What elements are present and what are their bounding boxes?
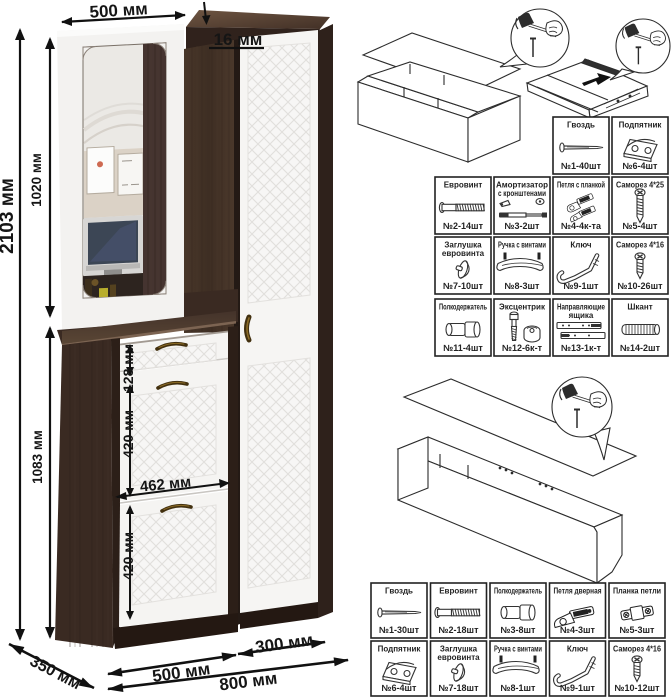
svg-text:№7-10шт: №7-10шт bbox=[443, 281, 484, 291]
svg-text:Саморез 4*16: Саморез 4*16 bbox=[616, 241, 664, 250]
svg-text:Подпятник: Подпятник bbox=[619, 121, 663, 130]
svg-text:ящика: ящика bbox=[569, 311, 594, 320]
svg-text:№8-1шт: №8-1шт bbox=[501, 683, 537, 693]
svg-text:Планка петли: Планка петли bbox=[613, 587, 661, 596]
svg-text:№4-3шт: №4-3шт bbox=[560, 625, 596, 635]
svg-text:Петля дверная: Петля дверная bbox=[554, 587, 602, 596]
svg-text:№6-4шт: №6-4шт bbox=[623, 161, 659, 171]
svg-text:№5-4шт: №5-4шт bbox=[623, 221, 659, 231]
svg-text:№4-4к-та: №4-4к-та bbox=[561, 221, 602, 231]
svg-text:Эксцентрик: Эксцентрик bbox=[499, 303, 546, 312]
svg-text:Ключ: Ключ bbox=[570, 241, 591, 250]
svg-text:№14-2шт: №14-2шт bbox=[620, 343, 661, 353]
svg-text:Гвоздь: Гвоздь bbox=[385, 587, 413, 596]
svg-text:№3-8шт: №3-8шт bbox=[501, 625, 537, 635]
svg-text:Ключ: Ключ bbox=[567, 645, 588, 654]
svg-text:№1-40шт: №1-40шт bbox=[561, 161, 602, 171]
svg-text:евровинта: евровинта bbox=[442, 249, 485, 258]
svg-text:Подпятник: Подпятник bbox=[378, 645, 422, 654]
svg-text:Полкодержатель: Полкодержатель bbox=[439, 303, 487, 312]
svg-text:Ручка с винтами: Ручка с винтами bbox=[494, 645, 542, 654]
svg-text:Ручка с винтами: Ручка с винтами bbox=[498, 241, 546, 250]
svg-text:Евровинт: Евровинт bbox=[439, 587, 478, 596]
svg-text:Евровинт: Евровинт bbox=[444, 181, 483, 190]
svg-text:№9-1шт: №9-1шт bbox=[560, 683, 596, 693]
svg-text:Гвоздь: Гвоздь bbox=[567, 121, 595, 130]
svg-text:Шкант: Шкант bbox=[627, 303, 652, 312]
svg-text:№5-3шт: №5-3шт bbox=[620, 625, 656, 635]
svg-text:№10-12шт: №10-12шт bbox=[615, 683, 661, 693]
svg-text:№6-4шт: №6-4шт bbox=[382, 683, 418, 693]
svg-text:№10-26шт: №10-26шт bbox=[618, 281, 664, 291]
svg-text:№2-18шт: №2-18шт bbox=[439, 625, 480, 635]
svg-text:Саморез 4*16: Саморез 4*16 bbox=[613, 645, 661, 654]
svg-text:№7-18шт: №7-18шт bbox=[439, 683, 480, 693]
svg-text:с кронштенами: с кронштенами bbox=[498, 189, 546, 198]
svg-text:№13-1к-т: №13-1к-т bbox=[561, 343, 602, 353]
svg-text:№12-6к-т: №12-6к-т bbox=[502, 343, 543, 353]
svg-text:евровинта: евровинта bbox=[437, 653, 480, 662]
svg-text:№3-2шт: №3-2шт bbox=[505, 221, 541, 231]
svg-text:№9-1шт: №9-1шт bbox=[564, 281, 600, 291]
svg-text:Полкодержатель: Полкодержатель bbox=[494, 587, 542, 596]
svg-text:№2-14шт: №2-14шт bbox=[443, 221, 484, 231]
svg-text:№8-3шт: №8-3шт bbox=[505, 281, 541, 291]
svg-text:Петля с планкой: Петля с планкой bbox=[557, 181, 605, 190]
svg-text:№1-30шт: №1-30шт bbox=[379, 625, 420, 635]
svg-text:Саморез 4*25: Саморез 4*25 bbox=[616, 181, 664, 190]
svg-text:№11-4шт: №11-4шт bbox=[443, 343, 483, 353]
